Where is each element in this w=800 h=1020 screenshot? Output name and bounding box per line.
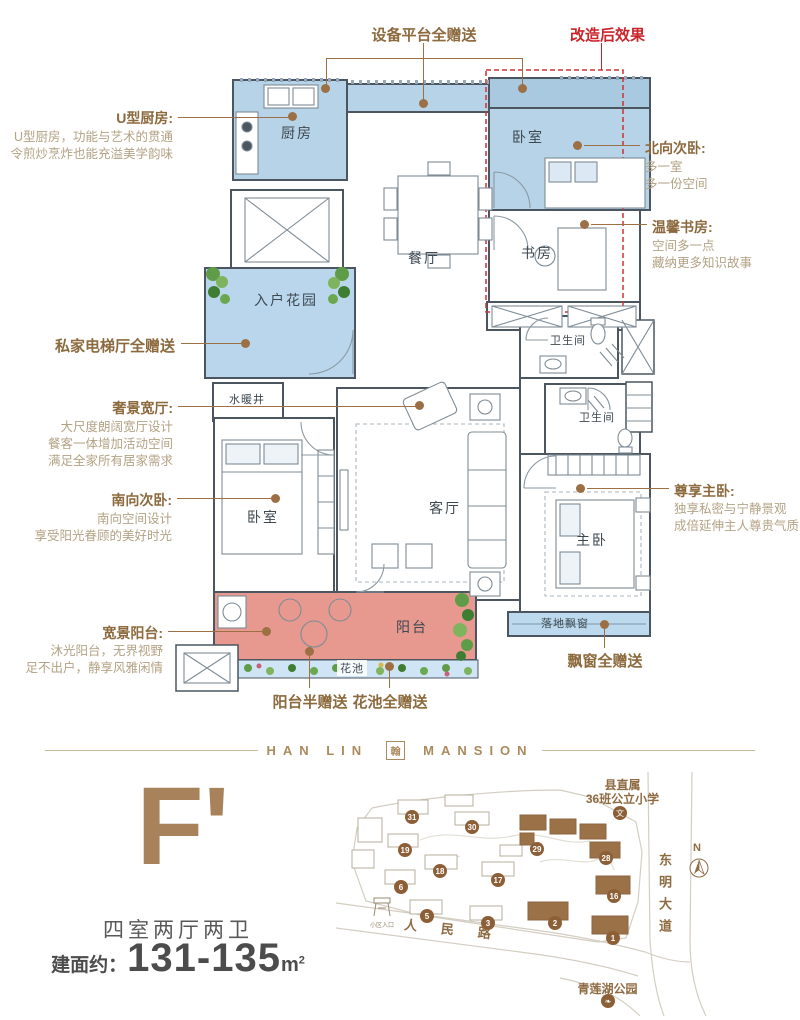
room-label-entry-garden: 入户花园 [254,290,318,310]
brand-logo-icon: 翰 [386,741,405,760]
area-unit: m2 [281,954,305,977]
room-label-bedroom-north: 卧室 [512,127,544,147]
leader-line [178,406,416,407]
leader-line [423,43,424,58]
annotation-living-hall-desc: 大尺度朗阔宽厅设计 餐客一体增加活动空间 满足全家所有居家需求 [48,419,173,470]
desc-line: 令煎炒烹炸也能充溢美学韵味 [10,147,173,161]
leader-line [389,671,390,688]
leader-dot [385,662,394,671]
room-label-kitchen: 厨房 [281,123,313,143]
unit-area: 建面约： 131-135 m2 [48,936,308,981]
compass-label: N [693,842,701,854]
desc-line: 沐光阳台，无界视野 [50,644,163,658]
annotation-south-bedroom-desc: 南向空间设计 享受阳光眷顾的美好时光 [34,511,172,545]
floorplan-page: 厨房 卧室 书房 餐厅 客厅 卫生间 卫生间 卧室 主卧 阳台 花池 入户花园 … [0,0,800,1020]
leader-line-red [601,43,602,70]
annotation-north-bedroom-title: 北向次卧: [645,138,706,158]
leader-dot [305,647,314,656]
desc-line: U型厨房，功能与艺术的贯通 [14,130,173,144]
brand-text-left: HAN LIN [266,743,368,758]
area-unit-base: m [281,954,299,976]
room-label-bath1: 卫生间 [550,332,586,348]
room-label-bath2: 卫生间 [579,409,615,425]
unit-type-code: F' [128,772,238,882]
room-label-balcony: 阳台 [396,617,428,637]
leader-dot [419,99,428,108]
leader-line [587,488,669,489]
annotation-kitchen-title: U型厨房: [116,108,173,128]
annotation-elevator-gift: 私家电梯厅全赠送 [55,335,175,356]
annotation-balcony-title: 宽景阳台: [102,623,163,643]
leader-line [522,58,523,86]
desc-line: 藏纳更多知识故事 [652,256,752,270]
annotation-master-title: 尊享主卧: [674,481,735,501]
annotation-kitchen-desc: U型厨房，功能与艺术的贯通 令煎炒烹炸也能充溢美学韵味 [10,129,173,163]
annotation-south-bedroom-title: 南向次卧: [111,490,172,510]
brand-text-right: MANSION [423,743,533,758]
divider-line [45,750,258,751]
desc-line: 空间多一点 [652,239,715,253]
leader-line [326,58,523,59]
road-label-east: 东明大道 [655,853,674,953]
leader-dot [415,401,424,410]
annotation-north-bedroom-desc: 多一室 多一份空间 [645,159,708,193]
annotation-renovation: 改造后效果 [540,24,675,45]
annotation-living-hall-title: 奢景宽厅: [112,398,173,418]
room-label-living: 客厅 [429,498,461,518]
desc-line: 享受阳光眷顾的美好时光 [34,529,172,543]
school-label-line2: 36班公立小学 [565,790,680,807]
leader-line [168,631,263,632]
leader-dot [271,494,280,503]
leader-dot [576,484,585,493]
leader-dot [600,620,609,629]
leader-dot [321,84,330,93]
annotation-master-desc: 独享私密与宁静景观 成倍延伸主人尊贵气质 [674,501,799,535]
leader-line [177,498,272,499]
room-label-bedroom-south: 卧室 [247,507,279,527]
park-icon: ❧ [601,994,615,1008]
room-label-dining: 餐厅 [408,248,440,268]
leader-dot [262,627,271,636]
leader-line [591,224,647,225]
annotation-study-title: 温馨书房: [652,217,713,237]
leader-line [178,117,290,118]
brand-divider: HAN LIN 翰 MANSION [45,741,755,760]
annotation-platform-gift: 设备平台全赠送 [329,24,519,45]
desc-line: 成倍延伸主人尊贵气质 [674,519,799,533]
room-label-flower-bed: 花池 [337,660,367,676]
room-label-master: 主卧 [576,530,608,550]
leader-line [604,629,605,648]
desc-line: 餐客一体增加活动空间 [48,437,173,451]
leader-line [326,58,327,86]
annotation-flower-gift: 花池全赠送 [320,691,460,712]
leader-dot [580,220,589,229]
room-label-study: 书房 [521,243,553,263]
desc-line: 南向空间设计 [97,512,172,526]
leader-line [181,343,241,344]
desc-line: 多一份空间 [645,177,708,191]
annotation-baywindow-gift: 飘窗全赠送 [535,650,675,671]
leader-line [584,145,640,146]
area-unit-sup: 2 [299,954,305,966]
desc-line: 大尺度朗阔宽厅设计 [60,420,173,434]
room-label-bay-window: 落地飘窗 [541,615,589,631]
room-label-utility-shaft: 水暖井 [229,391,265,407]
leader-line [309,656,310,688]
leader-line [423,58,424,100]
desc-line: 多一室 [645,160,683,174]
area-label: 建面约： [51,950,127,977]
desc-line: 足不出户，静享风雅闲情 [25,661,163,675]
leader-dot [518,84,527,93]
desc-line: 独享私密与宁静景观 [674,502,787,516]
desc-line: 满足全家所有居家需求 [48,454,173,468]
entrance-label: 小区入口 [352,920,412,929]
divider-line [542,750,755,751]
leader-dot [573,141,582,150]
leader-dot [241,339,250,348]
school-icon: 文 [613,806,627,820]
leader-dot [288,112,297,121]
annotation-study-desc: 空间多一点 藏纳更多知识故事 [652,238,752,272]
annotation-balcony-desc: 沐光阳台，无界视野 足不出户，静享风雅闲情 [25,643,163,677]
area-value: 131-135 [127,936,281,981]
